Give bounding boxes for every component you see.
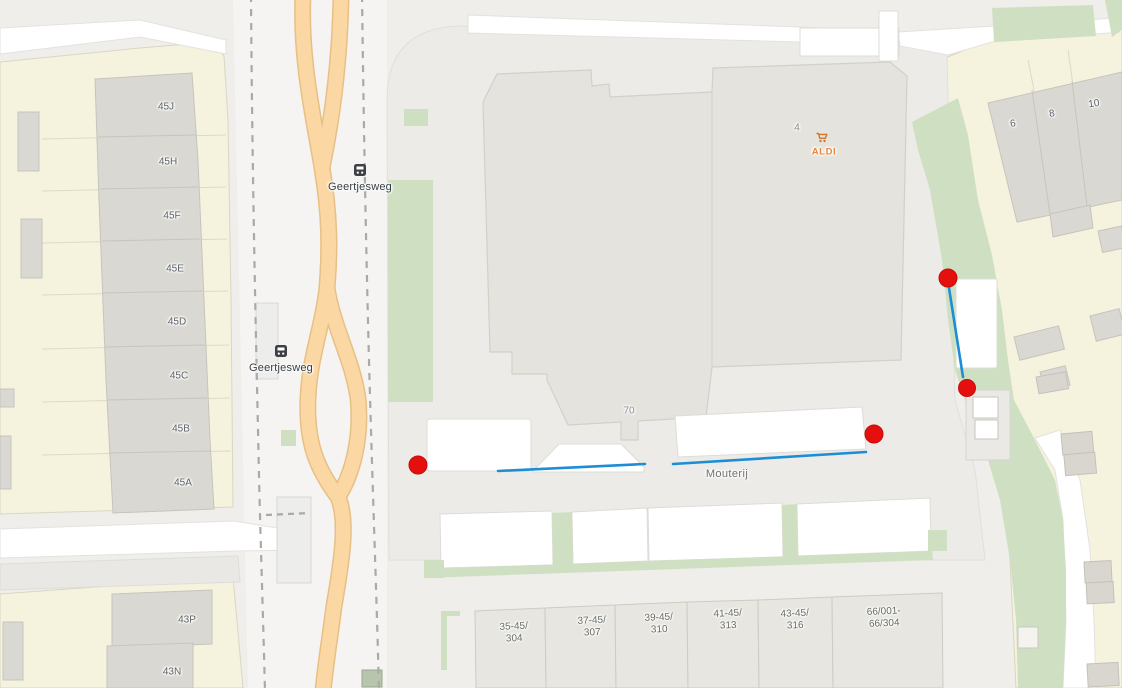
bus-stop-icon[interactable] [275,344,287,362]
bottom-building-row [475,593,943,688]
red-marker-4 [959,380,976,397]
red-marker-3 [939,269,957,287]
red-marker-2 [865,425,883,443]
map-canvas[interactable]: Geertjesweg Geertjesweg 45J 45H 45F 45E … [0,0,1122,688]
red-marker-1 [409,456,427,474]
shopping-cart-icon [816,130,829,148]
bus-stop-icon[interactable] [354,163,366,181]
map-graphics [0,0,1122,688]
